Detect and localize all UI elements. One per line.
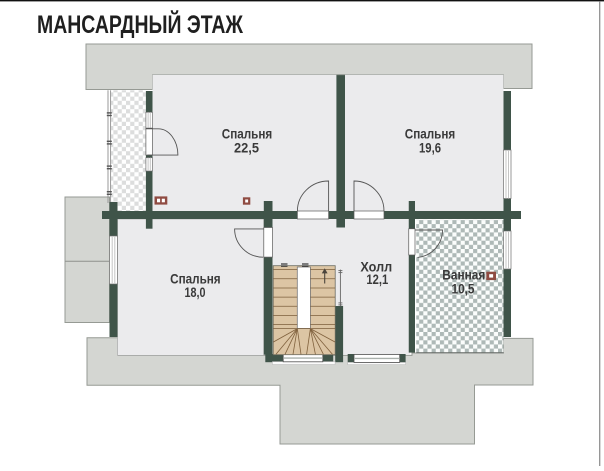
svg-text:МАНСАРДНЫЙ ЭТАЖ: МАНСАРДНЫЙ ЭТАЖ bbox=[37, 11, 244, 39]
svg-text:Спальня: Спальня bbox=[222, 127, 273, 142]
svg-text:10,5: 10,5 bbox=[452, 282, 475, 297]
svg-text:Ванная: Ванная bbox=[442, 268, 485, 283]
svg-text:12,1: 12,1 bbox=[366, 272, 388, 287]
svg-text:18,0: 18,0 bbox=[185, 285, 206, 300]
svg-text:22,5: 22,5 bbox=[234, 140, 260, 155]
svg-text:19,6: 19,6 bbox=[419, 140, 441, 155]
svg-text:Спальня: Спальня bbox=[405, 127, 456, 142]
